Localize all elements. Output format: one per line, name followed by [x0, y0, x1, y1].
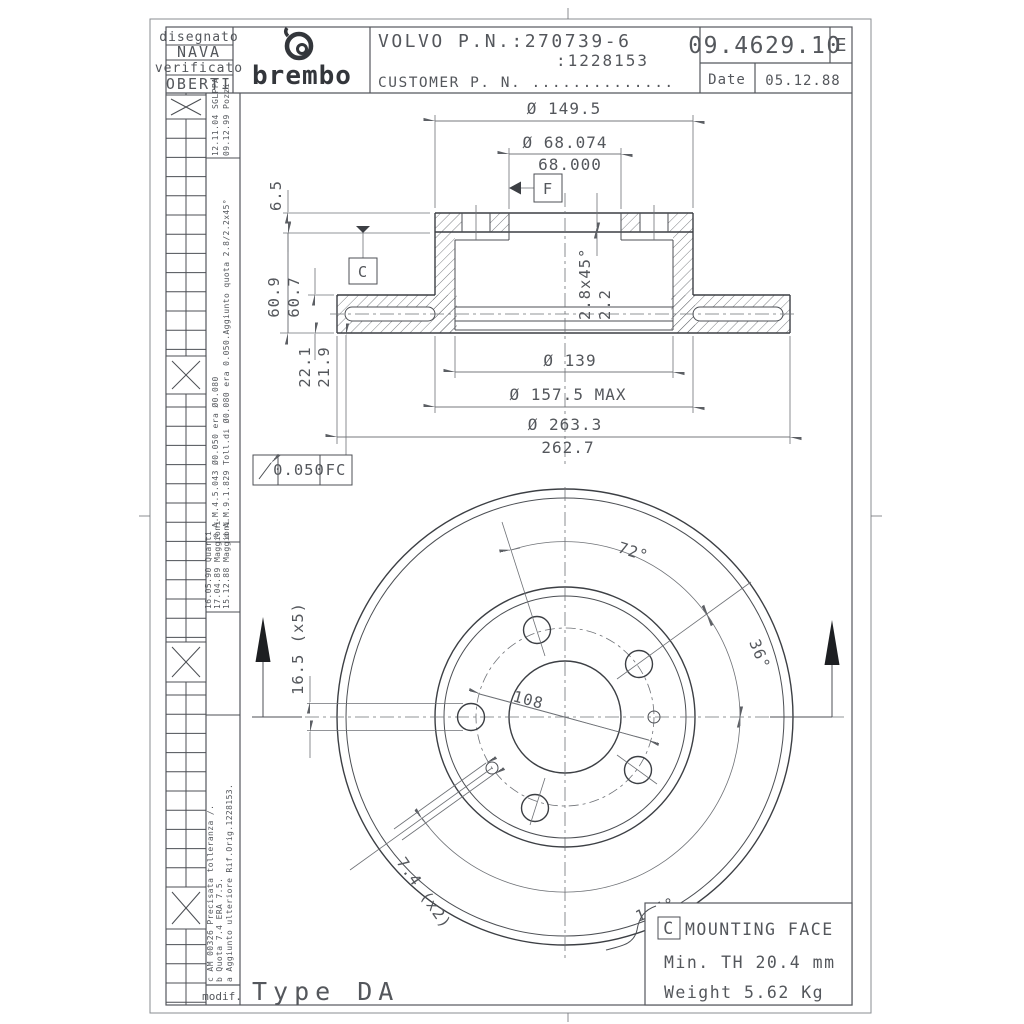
- section-dimensions: Ø 149.5 Ø 68.074 68.000 6.5 60.9 60.7 22…: [265, 99, 790, 457]
- dim-21-9: 21.9: [315, 346, 333, 387]
- front-dimensions: 72° 36° 144° 108 16.5 (x5) 7.4 (x2): [289, 539, 774, 932]
- dim-pin-hole: 7.4 (x2): [393, 854, 455, 932]
- dim-bore-dia-max: Ø 68.074: [522, 133, 607, 152]
- pin-holes: [486, 711, 660, 774]
- type-label: Type DA: [252, 977, 399, 1006]
- revision-entry: 09.12.99 Pozzi: [222, 83, 231, 156]
- datum-c: C: [349, 226, 377, 284]
- revision-letter: E: [836, 35, 847, 56]
- mount-datum: C: [663, 919, 674, 938]
- volvo-part-number-2: :1228153: [556, 51, 649, 70]
- dim-outer-dia-max: Ø 263.3: [528, 415, 602, 434]
- dim-inner-hat-dia: Ø 139: [543, 351, 596, 370]
- volvo-part-number: VOLVO P.N.:270739-6: [378, 31, 631, 52]
- svg-text:C: C: [358, 263, 368, 281]
- revision-entry: 16.05.90 Quarti: [204, 531, 213, 609]
- mounting-face-label: MOUNTING FACE: [685, 920, 834, 939]
- dim-stud-hole: 16.5 (x5): [289, 602, 307, 695]
- drawing-sheet: disegnato NAVA verificato OBERTI brembo …: [0, 0, 1024, 1024]
- drawing-number: 09.4629.10: [688, 33, 841, 59]
- revision-entry: d A.M.9.1.829 Toll.di Ø0.080 era 0.050.A…: [221, 199, 231, 538]
- revision-entry: a Aggiunto ulteriore Rif.Orig.1228153.: [225, 784, 234, 982]
- dim-max-hat-dia: Ø 157.5 MAX: [510, 385, 627, 404]
- dim-6-5: 6.5: [267, 180, 285, 211]
- revision-entry: 15.12.88 Maggioni: [222, 520, 231, 609]
- dim-bore-dia-min: 68.000: [538, 155, 602, 174]
- dim-22-1: 22.1: [296, 346, 314, 387]
- designed-name: NAVA: [177, 43, 221, 61]
- datum-f: F: [509, 174, 562, 202]
- runout-datum: FC: [326, 461, 347, 479]
- revision-entry: c AM 00326 Precisata tolleranza ∕.: [206, 805, 215, 982]
- revision-entry: e A.M.4.5.043 Ø0.050 era Ø0.080: [210, 376, 220, 538]
- brand-wordmark: brembo: [252, 61, 352, 91]
- angle-36: 36°: [745, 637, 773, 672]
- title-block: disegnato NAVA verificato OBERTI brembo …: [155, 27, 852, 93]
- revision-entry: 17.04.89 Maggioni: [213, 520, 222, 609]
- revision-sidebar: 12.11.04 SGLPPA 09.12.99 Pozzi e A.M.4.5…: [166, 78, 242, 1005]
- technical-drawing: disegnato NAVA verificato OBERTI brembo …: [0, 0, 1024, 1024]
- svg-text:F: F: [543, 180, 553, 198]
- dim-chamfer-leg: 2.2: [596, 289, 614, 320]
- section-view: Ø 149.5 Ø 68.074 68.000 6.5 60.9 60.7 22…: [253, 99, 797, 485]
- dim-60-9: 60.9: [265, 276, 283, 317]
- dim-60-7: 60.7: [285, 276, 303, 317]
- section-cut-arrows: [252, 617, 840, 717]
- dim-outer-hat-dia: Ø 149.5: [527, 99, 601, 118]
- revision-entry: b Quota 7.4 ERA 7.5.: [215, 878, 224, 982]
- dim-outer-dia-min: 262.7: [541, 438, 594, 457]
- front-view: 72° 36° 144° 108 16.5 (x5) 7.4 (x2): [252, 487, 848, 962]
- dim-bolt-circle: 108: [511, 687, 546, 712]
- brembo-logo-icon: [286, 28, 311, 58]
- date-value: 05.12.88: [765, 73, 840, 89]
- date-label: Date: [708, 72, 746, 88]
- weight: Weight 5.62 Kg: [664, 983, 824, 1002]
- modif-label: modif.: [202, 990, 242, 1003]
- sheet-border: [139, 8, 882, 1022]
- runout-value: 0.050: [273, 461, 325, 479]
- angle-72: 72°: [616, 539, 651, 566]
- verified-label: verificato: [155, 61, 243, 76]
- customer-part-number: CUSTOMER P. N. ..............: [378, 75, 675, 91]
- min-thickness: Min. TH 20.4 mm: [664, 953, 836, 972]
- revision-entry: 12.11.04 SGLPPA: [211, 78, 220, 156]
- dim-chamfer: 2.8x45°: [576, 248, 594, 320]
